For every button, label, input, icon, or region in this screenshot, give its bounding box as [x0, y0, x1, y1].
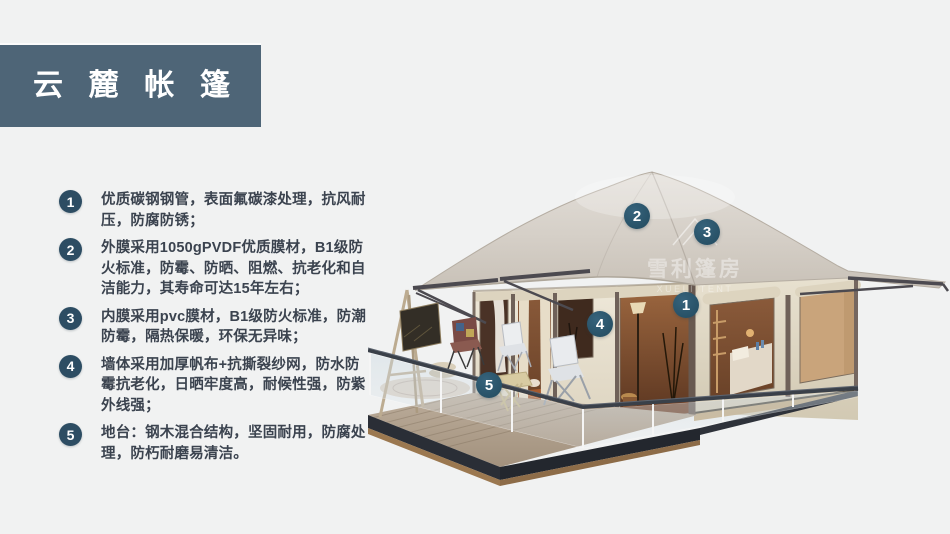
watermark-brand: 雪利篷房 — [647, 257, 743, 281]
watermark-brand-en: XUELI TENT — [657, 284, 734, 294]
feature-item: 1 优质碳钢钢管，表面氟碳漆处理，抗风耐压，防腐防锈； — [59, 190, 389, 231]
slide-canvas: 云 麓 帐 篷 1 优质碳钢钢管，表面氟碳漆处理，抗风耐压，防腐防锈； 2 外膜… — [0, 0, 950, 534]
rolled-blind — [477, 295, 510, 297]
right-window-blank — [800, 288, 856, 383]
callout-badge-5: 5 — [476, 372, 502, 398]
page-title-char: 云 — [33, 71, 63, 101]
feature-item: 2 外膜采用1050gPVDF优质膜材，B1级防火标准，防霉、防晒、阻燃、抗老化… — [59, 238, 389, 300]
feature-number-badge: 1 — [59, 190, 82, 213]
feature-item: 4 墙体采用加厚帆布+抗撕裂纱网，防水防霉抗老化，日晒牢度高，耐候性强，防紫外线… — [59, 355, 389, 417]
tent-render: 雪利篷房 XUELI TENT — [368, 145, 950, 534]
feature-item: 5 地台：钢木混合结构，坚固耐用，防腐处理，防朽耐磨易清洁。 — [59, 423, 389, 464]
title-banner: 云 麓 帐 篷 — [0, 43, 261, 127]
feature-number-badge: 5 — [59, 423, 82, 446]
feature-text: 地台：钢木混合结构，坚固耐用，防腐处理，防朽耐磨易清洁。 — [101, 423, 373, 464]
feature-number-badge: 4 — [59, 355, 82, 378]
feature-text: 墙体采用加厚帆布+抗撕裂纱网，防水防霉抗老化，日晒牢度高，耐候性强，防紫外线强； — [101, 355, 373, 417]
feature-number-badge: 3 — [59, 307, 82, 330]
callout-badge-1: 1 — [673, 292, 699, 318]
callout-badge-4: 4 — [587, 311, 613, 337]
right-window-interior — [710, 298, 774, 399]
feature-number-badge: 2 — [59, 238, 82, 261]
page-title: 云 麓 帐 篷 — [0, 71, 261, 101]
feature-text: 优质碳钢钢管，表面氟碳漆处理，抗风耐压，防腐防锈； — [101, 190, 373, 231]
page-title-char: 麓 — [89, 71, 119, 101]
rolled-blind — [558, 292, 615, 295]
feature-text: 外膜采用1050gPVDF优质膜材，B1级防火标准，防霉、防晒、阻燃、抗老化和自… — [101, 238, 373, 300]
feature-list: 1 优质碳钢钢管，表面氟碳漆处理，抗风耐压，防腐防锈； 2 外膜采用1050gP… — [59, 190, 389, 471]
tent-illustration: 雪利篷房 XUELI TENT — [368, 145, 950, 534]
feature-item: 3 内膜采用pvc膜材，B1级防火标准，防潮防霉，隔热保暖，环保无异味； — [59, 307, 389, 348]
feature-text: 内膜采用pvc膜材，B1级防火标准，防潮防霉，隔热保暖，环保无异味； — [101, 307, 373, 348]
page-title-char: 篷 — [200, 71, 230, 101]
callout-badge-2: 2 — [624, 203, 650, 229]
page-title-char: 帐 — [144, 71, 174, 101]
callout-badge-3: 3 — [694, 219, 720, 245]
